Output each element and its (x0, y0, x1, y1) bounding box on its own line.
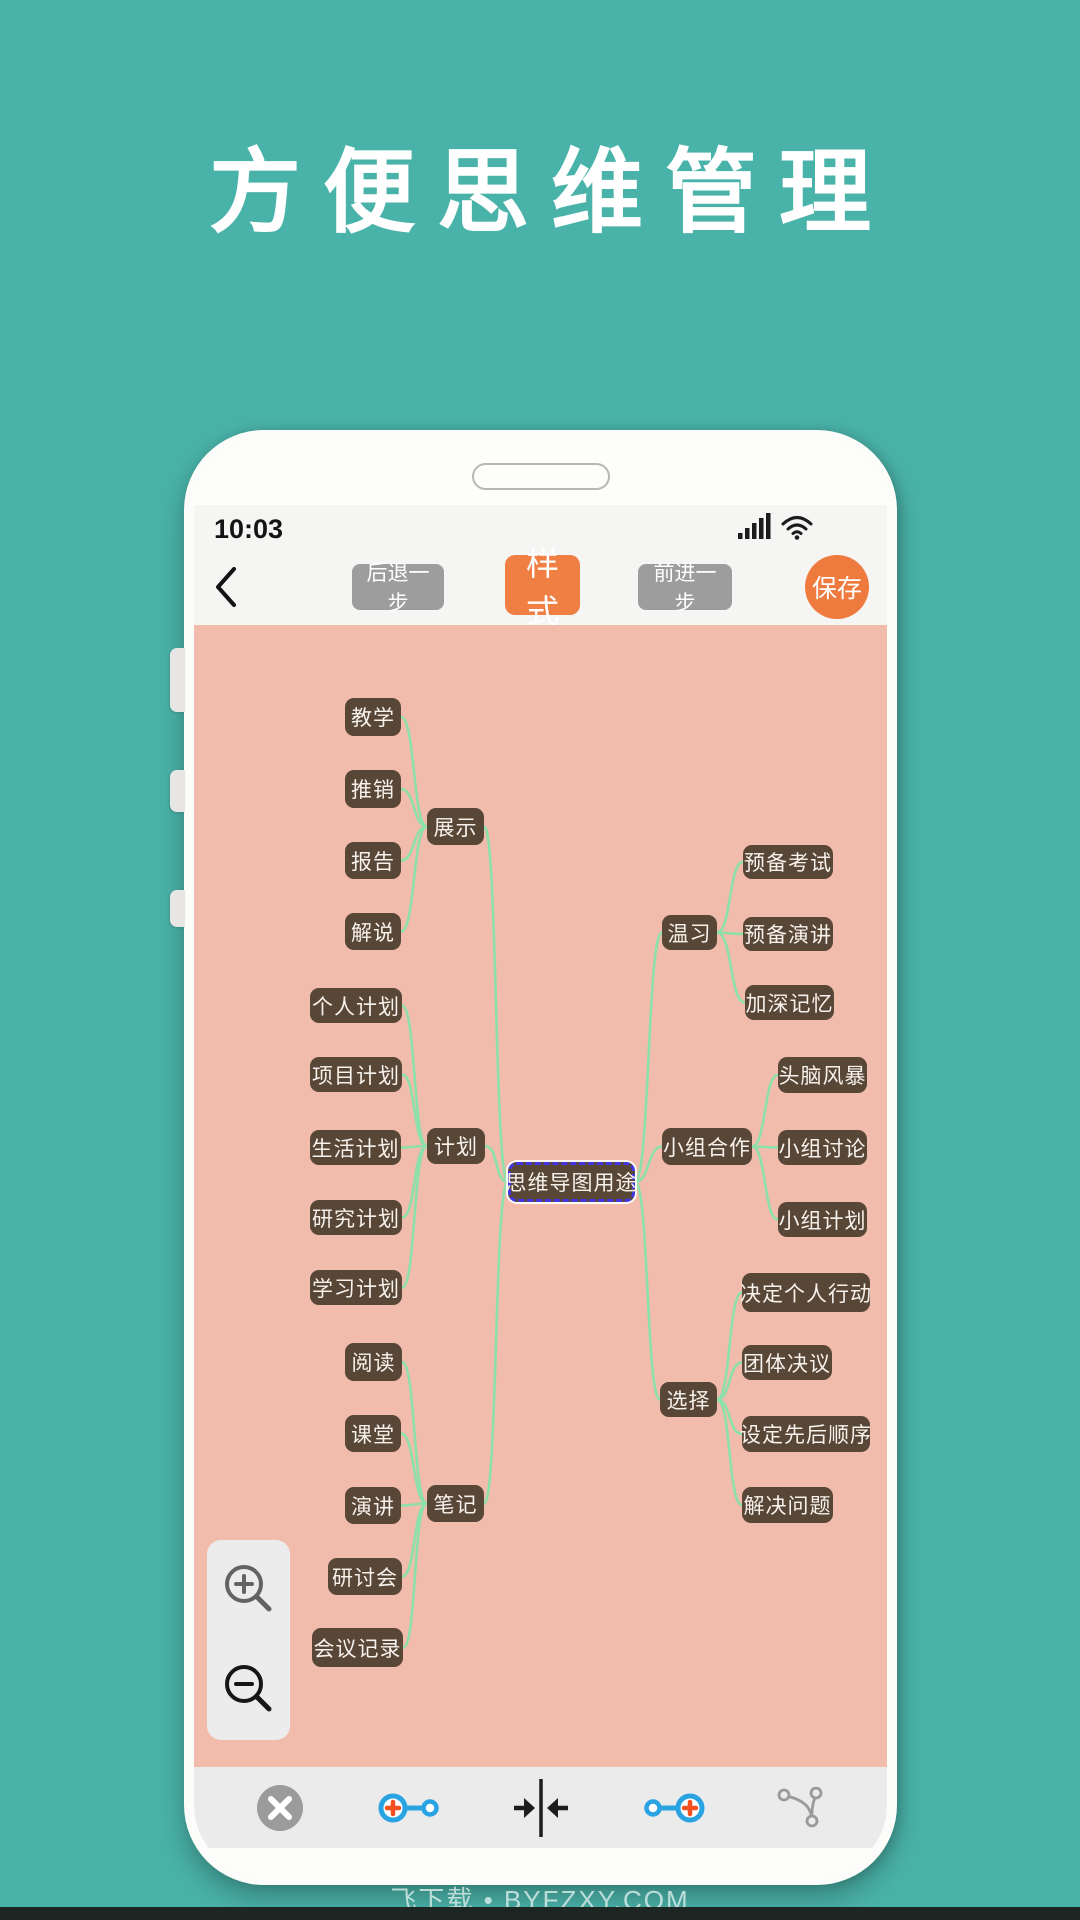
mindmap-node[interactable]: 预备考试 (743, 845, 833, 879)
speaker-notch (472, 463, 610, 490)
style-button[interactable]: 样式 (505, 555, 580, 615)
mindmap-edge (635, 1182, 660, 1400)
mindmap-edge (402, 1362, 427, 1504)
page-title: 方便思维管理 (0, 118, 1080, 251)
mindmap-node[interactable]: 会议记录 (312, 1628, 403, 1667)
branch-layout-icon (777, 1817, 823, 1832)
screen-bottom-band (194, 1848, 887, 1875)
mindmap-edge (484, 827, 508, 1183)
mindmap-node[interactable]: 展示 (427, 808, 484, 845)
add-node-before-icon (377, 1817, 441, 1832)
chevron-left-icon (212, 597, 238, 612)
mindmap-node[interactable]: 报告 (345, 842, 401, 879)
close-button[interactable] (257, 1785, 303, 1831)
screen-top-band (194, 440, 887, 505)
mindmap-node[interactable]: 小组合作 (662, 1128, 752, 1165)
mindmap-node[interactable]: 温习 (662, 915, 717, 950)
toolbar: 后退一步 样式 前进一步 保存 (194, 553, 887, 625)
mindmap-node[interactable]: 学习计划 (310, 1270, 402, 1305)
mindmap-node[interactable]: 计划 (427, 1128, 485, 1164)
back-button[interactable] (210, 565, 240, 611)
save-button[interactable]: 保存 (805, 555, 869, 619)
add-node-after-button[interactable] (642, 1787, 706, 1829)
add-node-after-icon (642, 1817, 706, 1832)
mindmap-edge (752, 1075, 778, 1147)
volume-down-button (170, 890, 185, 927)
mindmap-root-node[interactable]: 思维导图用途 (508, 1162, 635, 1202)
phone-frame: 10:03 (184, 430, 897, 1885)
mindmap-node[interactable]: 加深记忆 (745, 985, 834, 1020)
mindmap-node[interactable]: 小组讨论 (778, 1130, 867, 1165)
mindmap-node[interactable]: 解决问题 (742, 1487, 833, 1523)
mindmap-node[interactable]: 研究计划 (310, 1200, 402, 1235)
mindmap-node[interactable]: 推销 (345, 770, 401, 808)
mindmap-node[interactable]: 生活计划 (310, 1130, 401, 1165)
redo-button[interactable]: 前进一步 (638, 564, 732, 610)
mindmap-node[interactable]: 小组计划 (778, 1202, 867, 1237)
mindmap-node[interactable]: 团体决议 (742, 1345, 832, 1380)
zoom-panel (207, 1540, 290, 1740)
mindmap-node[interactable]: 选择 (660, 1382, 717, 1417)
zoom-out-icon (219, 1707, 279, 1722)
collapse-horizontal-icon (512, 1827, 570, 1842)
mindmap-edge (635, 933, 662, 1183)
bottom-toolbar (194, 1767, 887, 1848)
mindmap-edge (403, 1504, 427, 1648)
mindmap-node[interactable]: 教学 (345, 698, 401, 736)
bottom-strip (0, 1907, 1080, 1920)
zoom-in-button[interactable] (218, 1559, 280, 1621)
signal-bars-icon (738, 513, 772, 545)
mindmap-edge (401, 1434, 427, 1504)
zoom-in-icon (219, 1607, 279, 1622)
zoom-out-button[interactable] (218, 1659, 280, 1721)
mindmap-node[interactable]: 笔记 (427, 1485, 484, 1522)
mindmap-node[interactable]: 阅读 (345, 1343, 402, 1381)
mindmap-edge (717, 862, 743, 933)
mindmap-node[interactable]: 课堂 (345, 1415, 401, 1452)
phone-screen: 10:03 (194, 440, 887, 1875)
wifi-icon (781, 514, 813, 545)
mindmap-node[interactable]: 演讲 (345, 1487, 401, 1524)
mindmap-edge (717, 933, 745, 1003)
undo-button[interactable]: 后退一步 (352, 564, 444, 610)
mindmap-node[interactable]: 解说 (345, 913, 401, 950)
status-time: 10:03 (214, 514, 283, 545)
mindmap-node[interactable]: 预备演讲 (743, 917, 833, 951)
add-node-before-button[interactable] (377, 1787, 441, 1829)
branch-layout-button[interactable] (777, 1787, 823, 1829)
mindmap-edge (752, 1147, 778, 1220)
mindmap-node[interactable]: 研讨会 (328, 1558, 402, 1595)
mindmap-node[interactable]: 头脑风暴 (778, 1057, 867, 1093)
volume-up-button (170, 770, 185, 812)
mindmap-canvas[interactable]: 教学推销展示报告解说个人计划项目计划生活计划计划研究计划学习计划阅读课堂演讲笔记… (194, 625, 887, 1767)
close-icon (257, 1785, 303, 1831)
collapse-horizontal-button[interactable] (512, 1777, 570, 1839)
mindmap-node[interactable]: 个人计划 (310, 988, 402, 1023)
mindmap-node[interactable]: 决定个人行动 (742, 1273, 870, 1312)
mindmap-node[interactable]: 项目计划 (310, 1057, 402, 1092)
mindmap-node[interactable]: 设定先后顺序 (742, 1416, 870, 1452)
mindmap-edge (484, 1182, 508, 1504)
power-button (170, 648, 185, 712)
